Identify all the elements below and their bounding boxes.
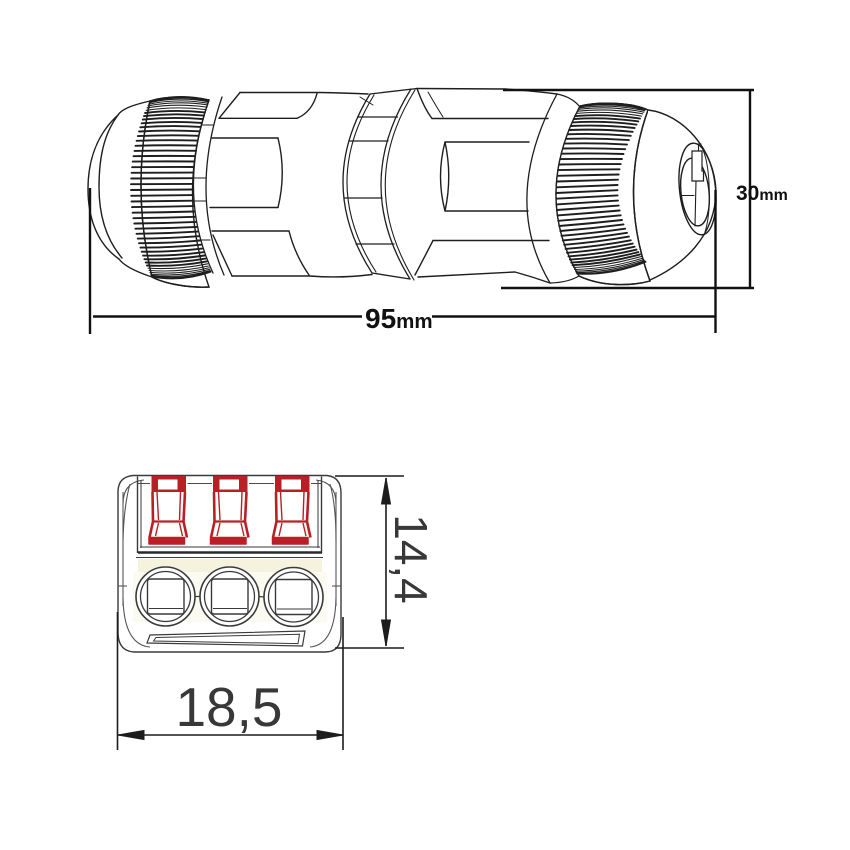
svg-text:14,4: 14,4 [385,514,437,604]
svg-text:18,5: 18,5 [175,676,282,738]
